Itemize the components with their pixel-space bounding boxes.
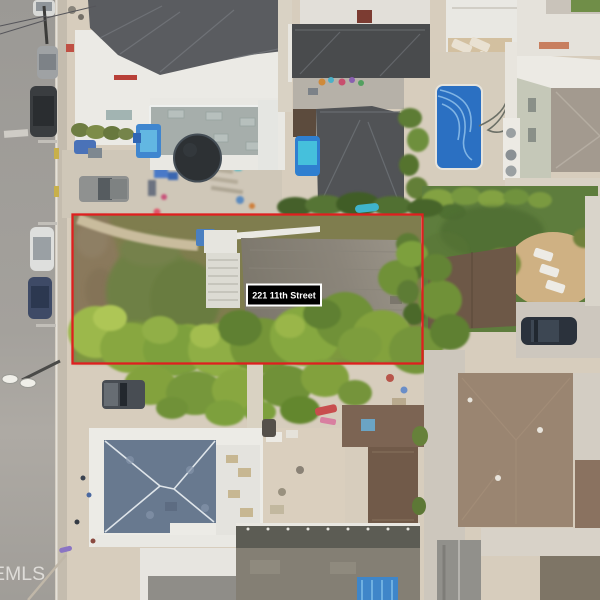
svg-text:221 11th Street: 221 11th Street: [252, 291, 316, 301]
svg-text:EMLS: EMLS: [0, 563, 45, 585]
